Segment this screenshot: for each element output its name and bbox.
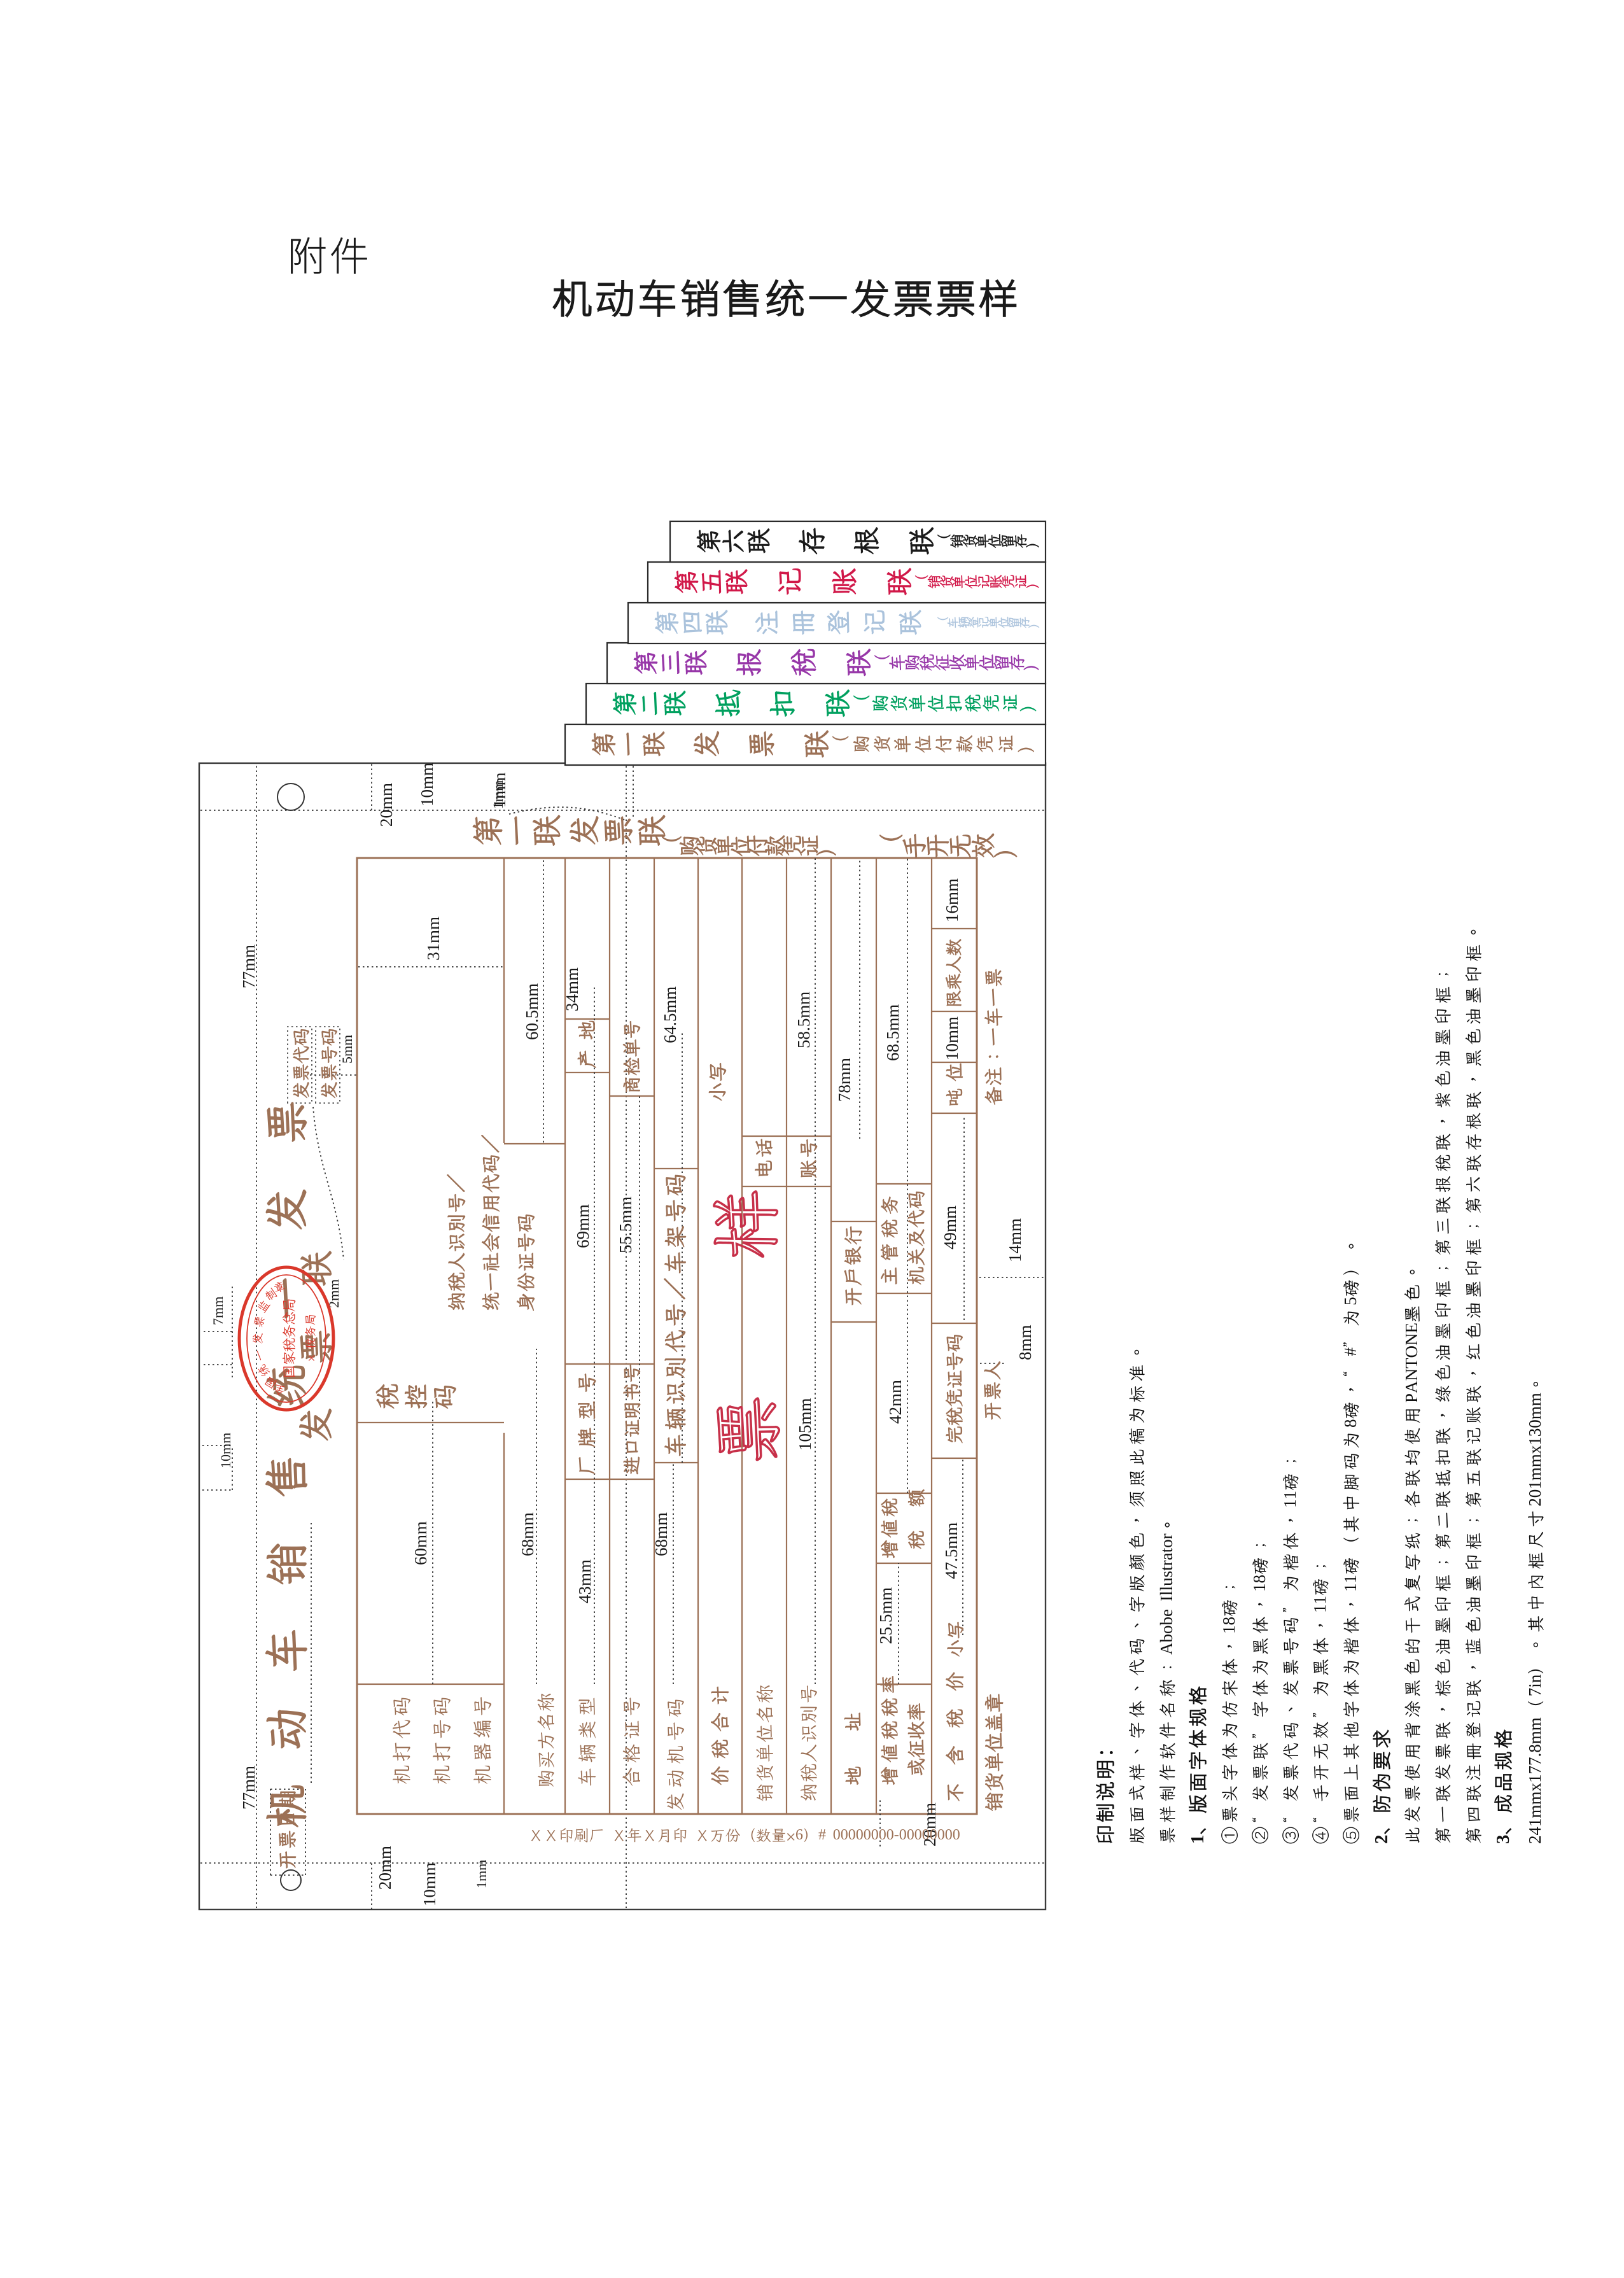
svg-text:6#00000000-00000000: 6#00000000-00000000	[795, 1827, 960, 1843]
